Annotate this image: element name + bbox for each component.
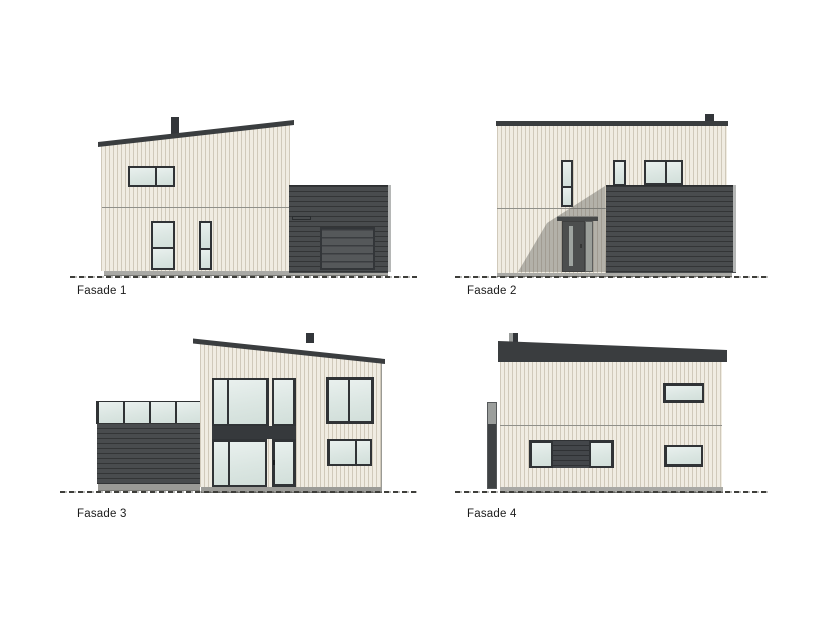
- window-pane: [274, 380, 293, 424]
- window-pane: [615, 162, 624, 184]
- window: [664, 445, 703, 467]
- window-pane: [667, 447, 701, 464]
- window-pane: [157, 168, 173, 185]
- window-pane: [532, 443, 551, 466]
- window-pane: [666, 386, 702, 401]
- roof: [498, 341, 727, 362]
- window-pane: [350, 380, 371, 422]
- facade-label: Fasade 1: [77, 285, 127, 297]
- floor-line: [500, 425, 722, 426]
- sliding-glass-door: [212, 439, 268, 487]
- roof-fascia: [496, 121, 728, 126]
- window: [589, 440, 614, 468]
- garage-door: [320, 227, 375, 270]
- ground-line: [455, 276, 770, 278]
- spandrel-panel: [212, 426, 297, 439]
- window-pane: [201, 223, 210, 248]
- railing-glass-panel: [125, 402, 149, 424]
- window-pane: [646, 162, 665, 183]
- window: [644, 160, 683, 185]
- window: [272, 378, 296, 427]
- window-pane: [230, 442, 265, 485]
- facade-label: Fasade 4: [467, 508, 517, 520]
- ground-line: [70, 276, 417, 278]
- floor-line: [102, 207, 289, 208]
- cladding-panel: [553, 440, 589, 468]
- ground-line: [455, 491, 770, 493]
- window: [151, 221, 175, 270]
- window-pane: [201, 250, 210, 268]
- window-pane: [563, 188, 571, 205]
- window: [326, 377, 374, 424]
- window-pane: [153, 249, 173, 268]
- window-pane: [667, 162, 681, 183]
- door-handle: [273, 460, 275, 465]
- railing-glass-panel: [99, 402, 123, 424]
- terrace-door: [272, 439, 296, 487]
- railing-glass-panel: [151, 402, 175, 424]
- window: [561, 160, 573, 207]
- window-pane: [153, 223, 173, 247]
- window: [613, 160, 626, 186]
- window-pane: [357, 441, 369, 464]
- garage: [606, 185, 736, 273]
- window: [199, 221, 212, 270]
- window: [529, 440, 553, 468]
- window: [128, 166, 175, 187]
- garage-corner-highlight: [733, 185, 736, 272]
- garage-corner-highlight: [388, 185, 391, 272]
- window-pane: [329, 380, 348, 422]
- glass-railing: [96, 401, 202, 424]
- garage: [97, 423, 202, 484]
- facade-label: Fasade 3: [77, 508, 127, 520]
- door-glass: [275, 442, 293, 484]
- window-pane: [130, 168, 155, 185]
- window-pane: [330, 441, 356, 464]
- window: [663, 383, 704, 403]
- drawing-sheet: Fasade 1 Fasade 2: [0, 0, 835, 626]
- window-pane: [591, 443, 611, 466]
- window-pane: [214, 442, 228, 485]
- facade-label: Fasade 2: [467, 285, 517, 297]
- window: [327, 439, 372, 467]
- window-pane: [563, 162, 571, 186]
- window-pane: [214, 380, 227, 424]
- window-pane: [229, 380, 266, 424]
- window: [212, 378, 269, 427]
- ground-line: [60, 491, 417, 493]
- vent: [292, 216, 311, 220]
- chimney: [306, 333, 314, 343]
- railing-glass-panel: [177, 402, 201, 424]
- garage-end-wall: [487, 402, 497, 489]
